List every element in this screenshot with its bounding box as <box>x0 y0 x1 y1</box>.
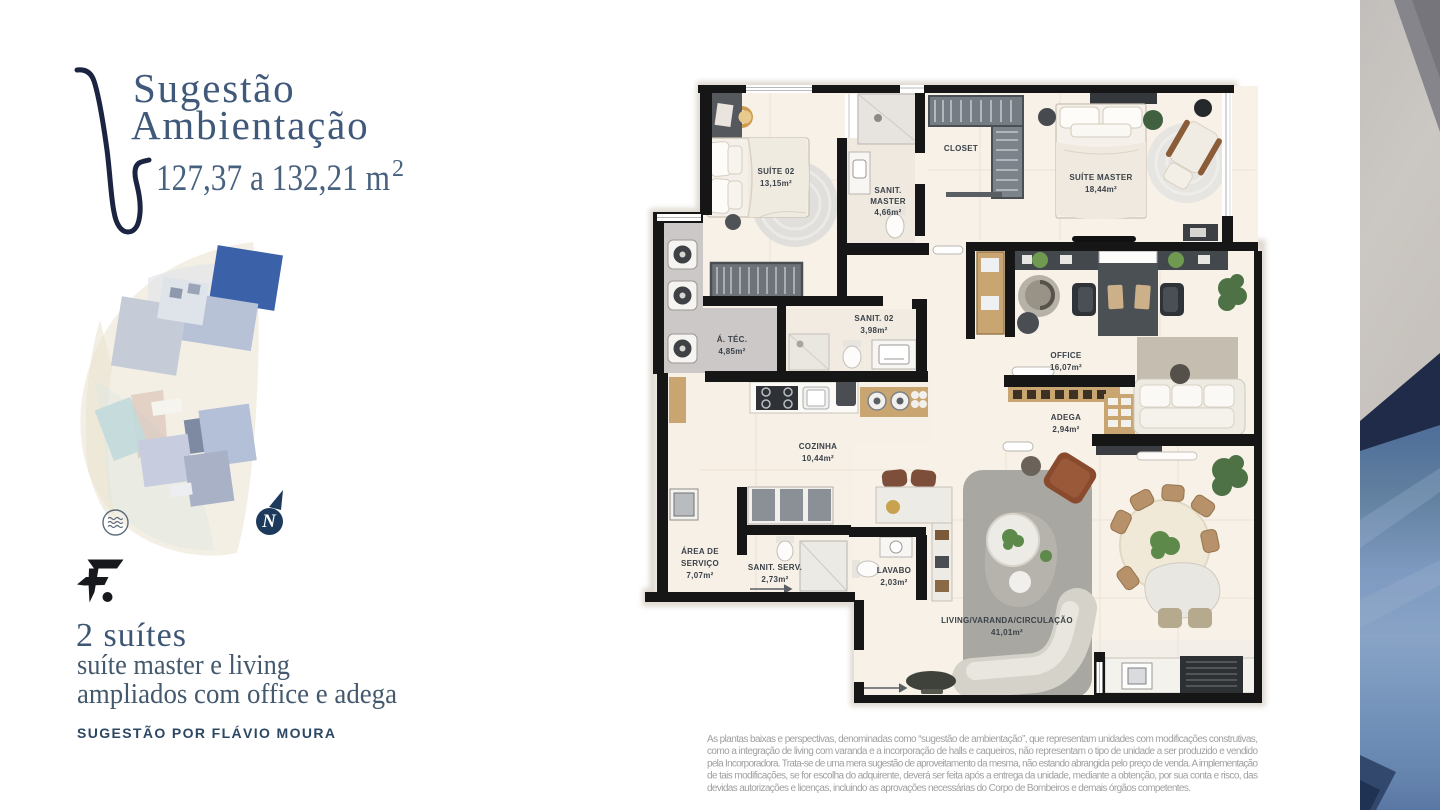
svg-text:N: N <box>261 511 277 532</box>
svg-text:COZINHA: COZINHA <box>799 442 838 451</box>
svg-text:pela Incorporadora. Trata-se d: pela Incorporadora. Trata-se de uma mera… <box>707 758 1258 769</box>
svg-text:3,98m²: 3,98m² <box>860 326 887 335</box>
svg-text:SANIT.: SANIT. <box>874 186 901 195</box>
svg-text:2: 2 <box>392 156 404 182</box>
svg-text:2,94m²: 2,94m² <box>1052 425 1079 434</box>
svg-text:SUÍTE MASTER: SUÍTE MASTER <box>1069 173 1132 182</box>
svg-text:41,01m²: 41,01m² <box>991 628 1023 637</box>
svg-text:como a integração de living co: como a integração de living com varanda … <box>707 746 1258 757</box>
svg-text:OFFICE: OFFICE <box>1050 351 1081 360</box>
svg-text:127,37 a 132,21 m: 127,37 a 132,21 m <box>156 158 390 199</box>
svg-text:Ambientação: Ambientação <box>131 102 369 148</box>
svg-text:CLOSET: CLOSET <box>944 144 978 153</box>
svg-text:ADEGA: ADEGA <box>1051 413 1081 422</box>
svg-text:2,73m²: 2,73m² <box>761 575 788 584</box>
svg-text:SANIT. SERV.: SANIT. SERV. <box>748 563 802 572</box>
svg-text:MASTER: MASTER <box>870 197 906 206</box>
svg-text:SANIT. 02: SANIT. 02 <box>854 314 893 323</box>
svg-text:2,03m²: 2,03m² <box>880 578 907 587</box>
svg-text:2 suítes: 2 suítes <box>76 617 187 654</box>
svg-text:devidas autorizações e licença: devidas autorizações e licenças, incluin… <box>707 783 1191 794</box>
svg-text:suíte master e living: suíte master e living <box>77 650 290 681</box>
svg-text:Á. TÉC.: Á. TÉC. <box>717 335 748 344</box>
svg-text:7,07m²: 7,07m² <box>686 571 713 580</box>
svg-text:ampliados com office e adega: ampliados com office e adega <box>77 679 398 710</box>
svg-text:SUGESTÃO POR FLÁVIO MOURA: SUGESTÃO POR FLÁVIO MOURA <box>77 724 335 741</box>
svg-text:SERVIÇO: SERVIÇO <box>681 559 719 568</box>
svg-text:4,85m²: 4,85m² <box>718 347 745 356</box>
svg-text:10,44m²: 10,44m² <box>802 454 834 463</box>
svg-text:ÁREA DE: ÁREA DE <box>681 547 719 556</box>
svg-text:13,15m²: 13,15m² <box>760 179 792 188</box>
svg-text:de tais modificações, se for e: de tais modificações, se for escolha do … <box>707 771 1258 782</box>
svg-text:18,44m²: 18,44m² <box>1085 185 1117 194</box>
svg-text:16,07m²: 16,07m² <box>1050 363 1082 372</box>
svg-text:4,66m²: 4,66m² <box>874 208 901 217</box>
svg-text:LAVABO: LAVABO <box>877 566 911 575</box>
svg-text:SUÍTE 02: SUÍTE 02 <box>757 167 794 176</box>
svg-text:LIVING/VARANDA/CIRCULAÇÃO: LIVING/VARANDA/CIRCULAÇÃO <box>941 616 1073 625</box>
svg-text:As plantas baixas e perspectiv: As plantas baixas e perspectivas, denomi… <box>707 734 1258 745</box>
